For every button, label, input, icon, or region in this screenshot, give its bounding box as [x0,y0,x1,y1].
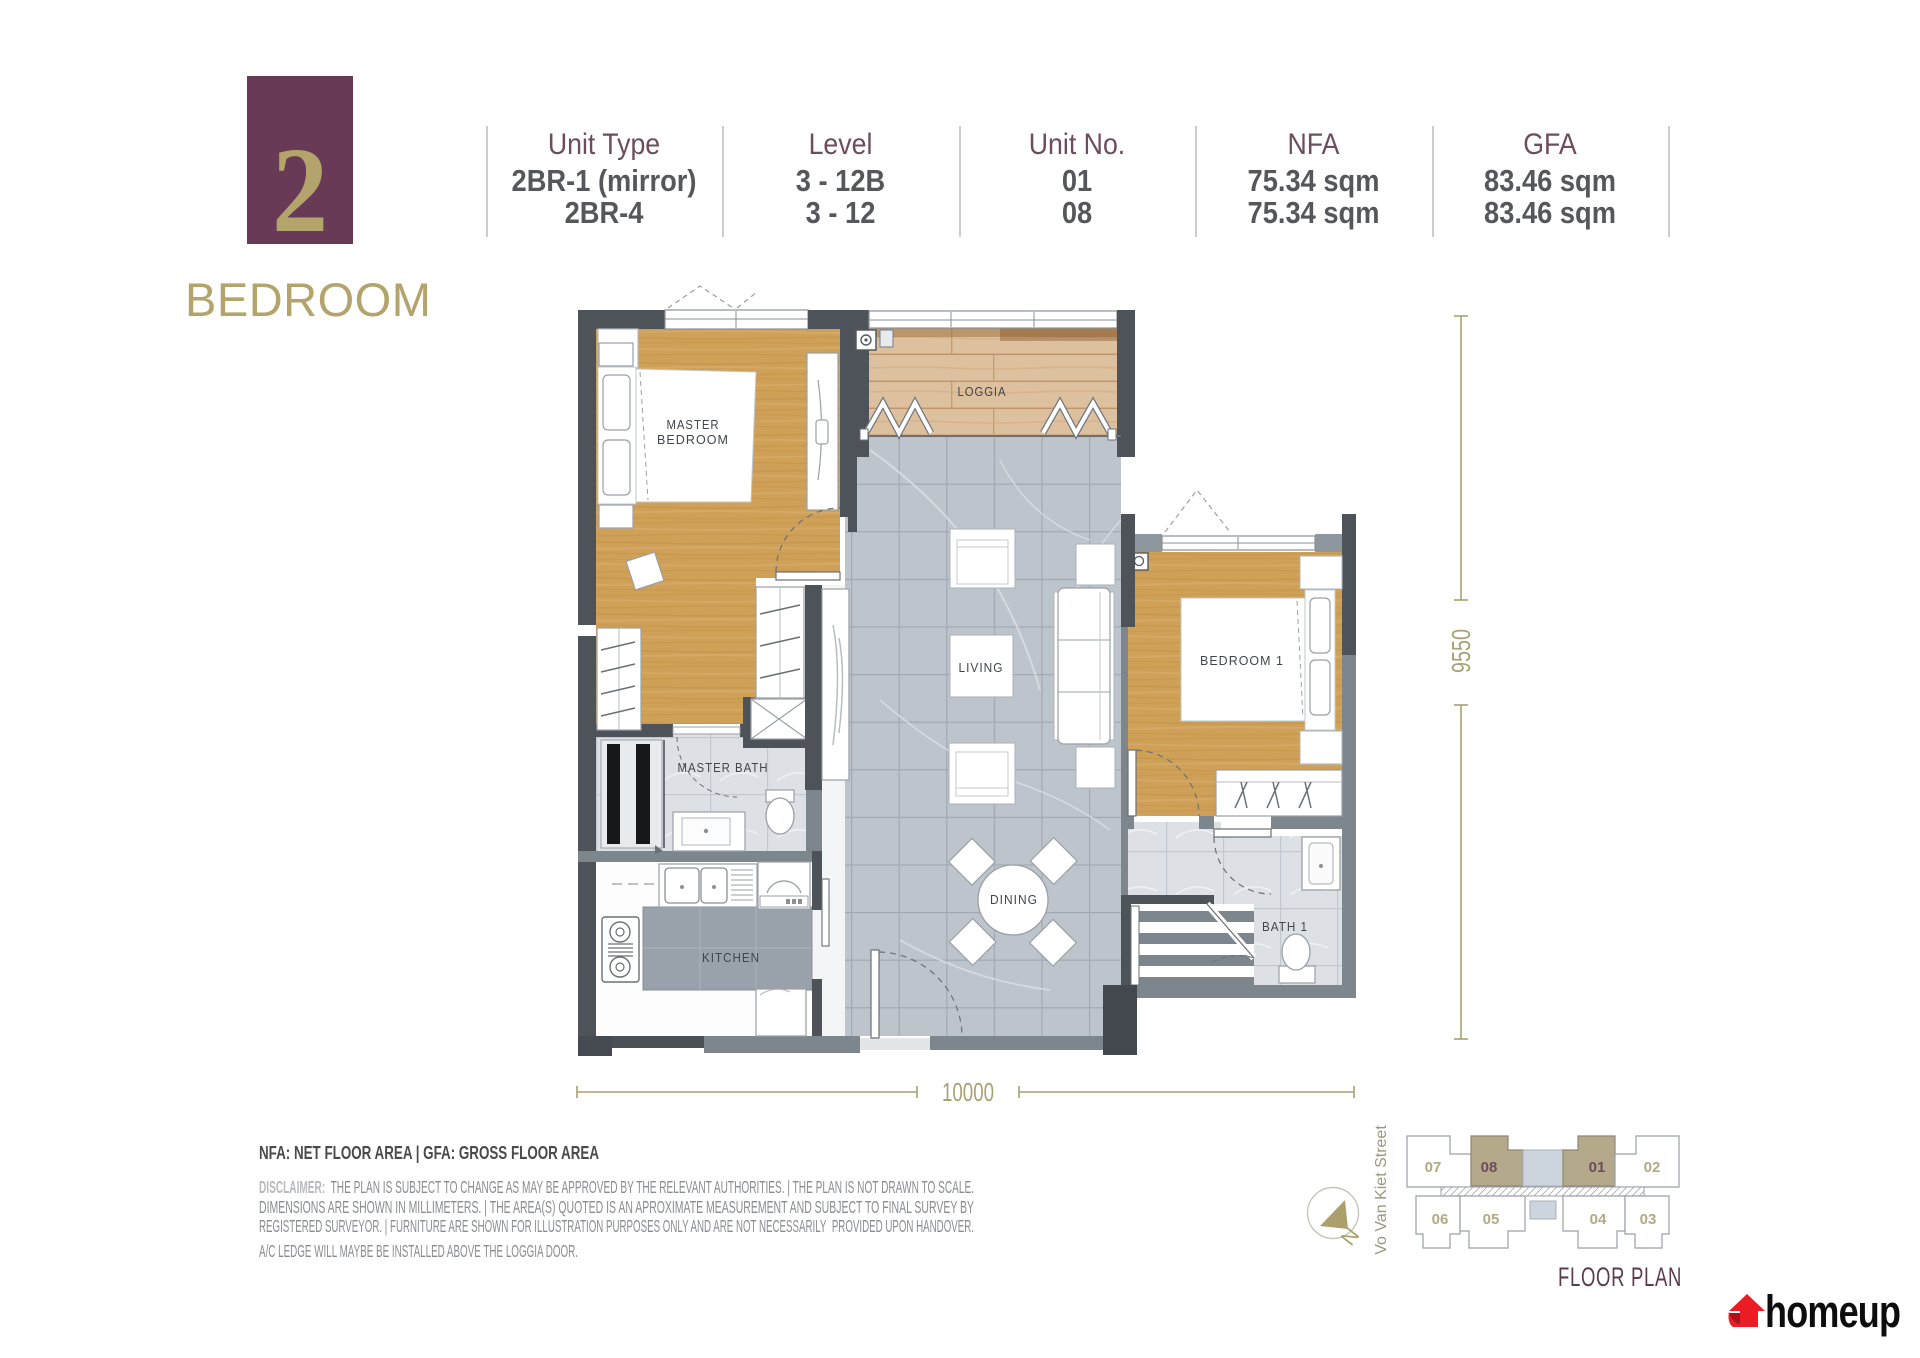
svg-text:DINING: DINING [990,892,1038,907]
svg-text:02: 02 [1644,1159,1661,1176]
svg-text:LIVING: LIVING [959,660,1004,675]
svg-text:BEDROOM: BEDROOM [657,432,729,447]
svg-text:LOGGIA: LOGGIA [958,384,1007,399]
svg-text:BATH 1: BATH 1 [1262,919,1308,934]
svg-text:03: 03 [1640,1211,1657,1228]
svg-text:10000: 10000 [942,1077,994,1107]
svg-text:04: 04 [1590,1211,1607,1228]
svg-text:01: 01 [1589,1159,1606,1176]
svg-text:08: 08 [1481,1159,1498,1176]
svg-text:Vo Van Kiet Street: Vo Van Kiet Street [1373,1125,1390,1255]
svg-text:MASTER: MASTER [667,417,720,432]
svg-text:07: 07 [1425,1159,1442,1176]
svg-text:06: 06 [1432,1211,1449,1228]
svg-text:MASTER BATH: MASTER BATH [678,760,769,775]
svg-text:05: 05 [1483,1211,1500,1228]
svg-text:BEDROOM 1: BEDROOM 1 [1200,653,1284,668]
svg-text:KITCHEN: KITCHEN [702,950,760,965]
svg-text:9550: 9550 [1446,629,1476,673]
